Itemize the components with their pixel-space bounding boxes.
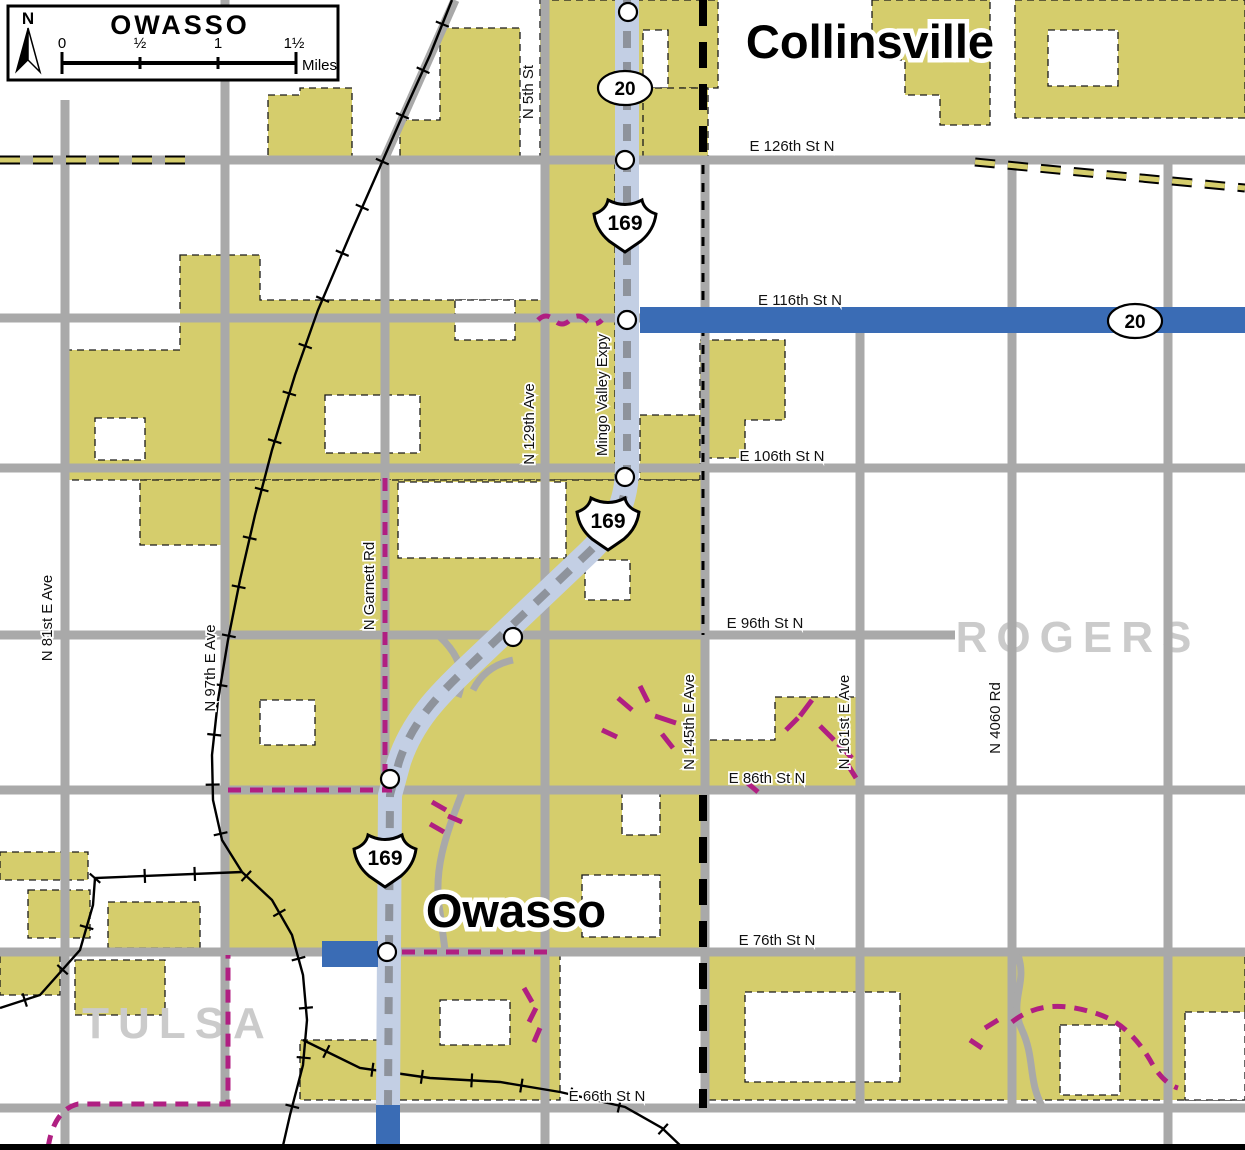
area-label: TULSA [82, 999, 274, 1048]
street-label: E 66th St N [569, 1088, 646, 1105]
street-label: E 76th St N [739, 932, 816, 949]
urban-hole [745, 992, 900, 1082]
state-route-shield: 20 [598, 71, 652, 105]
urban-hole [1060, 1025, 1120, 1095]
interchange-circle [378, 943, 396, 961]
owasso-map: ROGERSTULSA [0, 0, 1245, 1150]
interchange-circle [381, 770, 399, 788]
svg-text:169: 169 [607, 212, 642, 235]
urban-area [108, 902, 200, 948]
urban-hole [1048, 30, 1118, 86]
street-label-vertical: N Garnett Rd [361, 542, 378, 630]
scale-units-label: Miles [302, 57, 337, 74]
svg-text:169: 169 [367, 847, 402, 870]
interchange-circle [504, 628, 522, 646]
street-label: E 106th St N [739, 448, 824, 465]
interchange-circle [616, 151, 634, 169]
scale-tick-label: 1 [214, 35, 222, 52]
urban-hole [325, 395, 420, 453]
urban-hole [585, 560, 630, 600]
urban-hole [1185, 1012, 1245, 1100]
map-title: OWASSO [110, 10, 250, 40]
interchange-circle [618, 311, 636, 329]
railroad-tick [471, 1073, 472, 1087]
urban-area [0, 852, 88, 880]
street-label-vertical: Mingo Valley Expy [594, 333, 611, 456]
urban-area [268, 88, 352, 160]
street-label: E 126th St N [749, 138, 834, 155]
title-box: N OWASSO 0 ½ 1 1½ Miles [8, 6, 338, 80]
street-label-vertical: N 5th St [520, 64, 537, 119]
urban-area [700, 340, 785, 458]
interchange-circle [616, 468, 634, 486]
svg-text:20: 20 [614, 79, 635, 100]
street-label-vertical: N 4060 Rd [987, 682, 1004, 754]
svg-text:169: 169 [590, 510, 625, 533]
railroad-tick [144, 869, 145, 883]
urban-hole [622, 792, 660, 835]
north-label: N [22, 9, 34, 28]
railroad-tick [299, 1007, 313, 1008]
railroad-tick [194, 867, 195, 881]
city-label: Owasso [426, 884, 606, 937]
state-route-shield: 20 [1108, 304, 1162, 338]
railroad-tick [207, 734, 221, 736]
scale-tick-label: 1½ [284, 35, 305, 52]
street-label-vertical: N 81st E Ave [39, 575, 56, 661]
railroad-tick [297, 1057, 311, 1058]
urban-area [0, 955, 60, 995]
street-label-vertical: N 129th Ave [521, 383, 538, 464]
street-label: E 96th St N [727, 615, 804, 632]
street-label: E 116th St N [758, 292, 842, 309]
urban-area [643, 88, 708, 160]
city-label: Collinsville [746, 15, 994, 68]
street-label-vertical: N 161st E Ave [836, 675, 853, 770]
urban-hole [440, 1000, 510, 1045]
svg-text:20: 20 [1124, 312, 1145, 333]
map-neatline-bottom [0, 1144, 1245, 1150]
urban-hole [95, 418, 145, 460]
blue-road-segment [322, 941, 378, 967]
scale-tick-label: ½ [134, 35, 147, 52]
urban-area [28, 890, 90, 938]
street-label-vertical: N 97th E Ave [202, 624, 219, 711]
interchange-circle [619, 3, 637, 21]
urban-hole [260, 700, 315, 745]
street-label: E 86th St N [729, 770, 806, 787]
street-label-vertical: N 145th E Ave [681, 674, 698, 770]
scale-tick-label: 0 [58, 35, 66, 52]
